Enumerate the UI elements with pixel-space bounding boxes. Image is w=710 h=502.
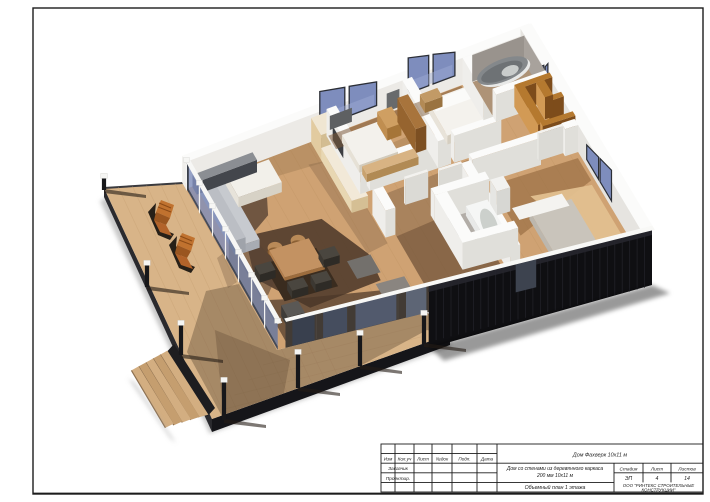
svg-text:200 мм 10х11 м: 200 мм 10х11 м [536,473,574,479]
svg-text:Лист: Лист [416,457,429,462]
svg-text:Проектир.: Проектир. [386,476,410,482]
svg-text:Дата: Дата [480,457,494,462]
svg-text:Лист: Лист [650,466,663,472]
svg-text:Изм: Изм [384,457,393,462]
svg-text:Объемный план 1 этажа: Объемный план 1 этажа [525,484,586,491]
svg-text:Листов: Листов [677,466,696,472]
svg-text:ЭП: ЭП [625,476,633,482]
svg-text:Кол.уч: Кол.уч [398,457,412,462]
svg-text:Дом со стенами из деревянного: Дом со стенами из деревянного каркаса [506,466,604,472]
svg-text:Дом Фахверк 10х11 м: Дом Фахверк 10х11 м [572,452,627,458]
svg-text:Стадия: Стадия [620,466,638,472]
svg-text:Подп.: Подп. [458,457,470,462]
svg-text:4: 4 [656,476,659,482]
svg-text:КОНСТРУКЦИИ": КОНСТРУКЦИИ" [642,487,676,492]
svg-text:№док: №док [436,457,449,462]
svg-text:14: 14 [684,476,690,482]
svg-text:Заказчик: Заказчик [388,466,409,472]
